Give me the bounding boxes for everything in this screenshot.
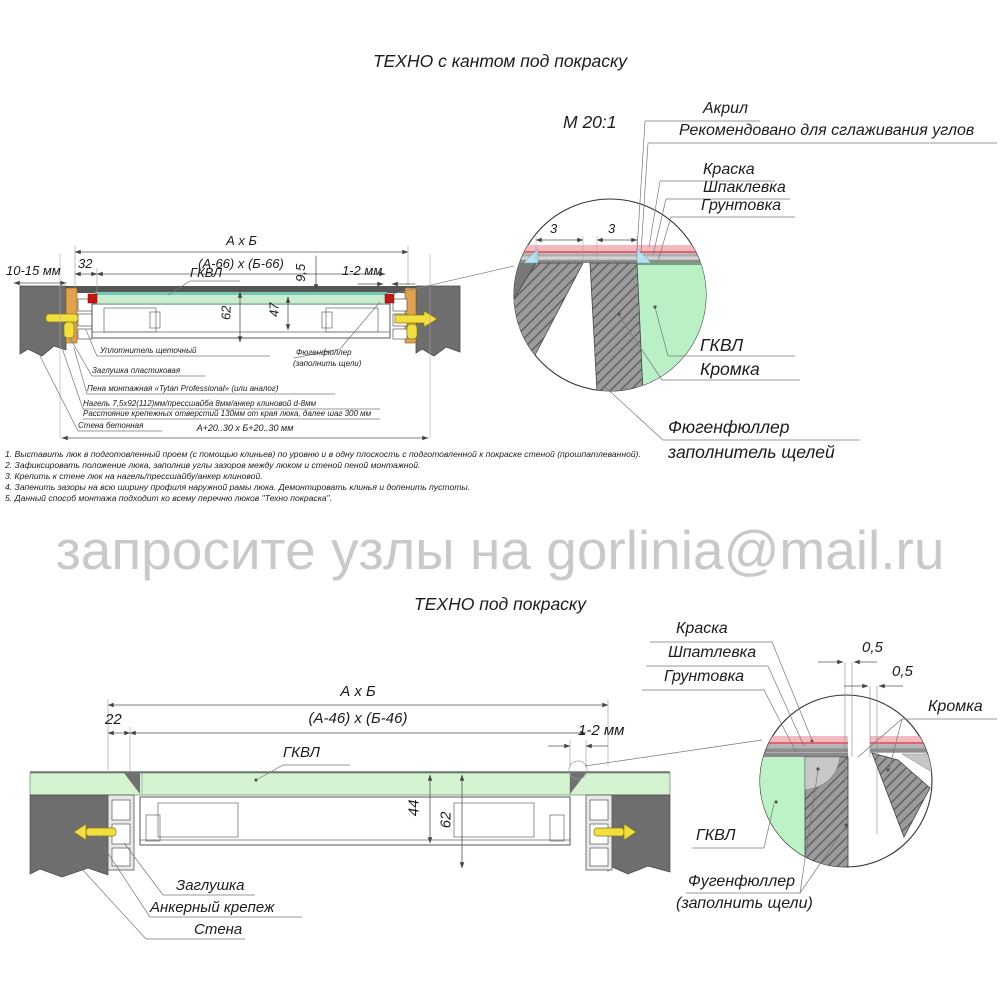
bdim-12: 1-2 мм bbox=[578, 723, 624, 739]
detail-fugen-title: Фюгенфюллер bbox=[668, 418, 789, 436]
dim-62: 62 bbox=[219, 306, 233, 320]
scale-label: М 20:1 bbox=[563, 113, 617, 131]
annot-fugen-2: (заполнить щели) bbox=[293, 360, 361, 368]
primer-layer-left bbox=[760, 748, 848, 753]
bdim-22: 22 bbox=[105, 712, 122, 728]
paint-line bbox=[513, 251, 708, 253]
annot-stena: Стена бетонная bbox=[78, 422, 143, 430]
gkvl-section bbox=[760, 753, 805, 867]
bcallout-kromka: Кромка bbox=[928, 699, 983, 716]
gkvl-panel-top bbox=[95, 292, 387, 295]
bcallout-zaglushka: Заглушка bbox=[176, 878, 244, 894]
callout-shpaklevka: Шпаклевка bbox=[703, 180, 786, 197]
dim-47: 47 bbox=[267, 303, 281, 317]
bcallout-gruntovka: Грунтовка bbox=[664, 669, 744, 686]
putty-layer bbox=[513, 254, 708, 257]
bottom-drawing bbox=[30, 699, 762, 939]
lid-edge-hatch bbox=[590, 263, 643, 392]
bdim-gkvl: ГКВЛ bbox=[283, 745, 320, 761]
dim-3-left: 3 bbox=[550, 222, 557, 236]
bottom-title: ТЕХНО под покраску bbox=[0, 595, 1000, 613]
lid-body bbox=[140, 797, 570, 845]
dim-3-right: 3 bbox=[608, 222, 615, 236]
bdim-62: 62 bbox=[438, 812, 454, 829]
edge-strip bbox=[760, 753, 848, 757]
paint-line-right bbox=[870, 742, 932, 744]
paint-line-left bbox=[760, 742, 848, 744]
note-2: 2. Зафиксировать положение люка, заполни… bbox=[5, 460, 420, 470]
bdim-05b: 0,5 bbox=[892, 664, 913, 680]
note-4: 4. Запенить зазоры на всю ширину профиля… bbox=[5, 482, 470, 492]
page: ТЕХНО с кантом под покраску М 20:1 Акрил… bbox=[0, 0, 1000, 1000]
putty-layer-right bbox=[870, 744, 932, 748]
lid-body bbox=[92, 304, 390, 338]
bdim-axb: А х Б bbox=[108, 684, 608, 700]
dim-32: 32 bbox=[78, 257, 92, 271]
bcallout-shpatlevka: Шпатлевка bbox=[668, 645, 756, 662]
dim-gkvl: ГКВЛ bbox=[190, 266, 222, 280]
base-layer bbox=[513, 260, 708, 263]
callout-akril: Акрил bbox=[703, 101, 748, 118]
primer-layer-right bbox=[870, 748, 932, 753]
bdim-inner: (А-46) х (Б-46) bbox=[130, 711, 586, 727]
gkvl-edge-line bbox=[637, 263, 717, 265]
annot-uplotnitel: Уплотнитель щеточный bbox=[100, 347, 196, 355]
note-3: 3. Крепить к стене люк на нагель/прессша… bbox=[5, 471, 263, 481]
bottom-05-dims bbox=[818, 662, 903, 686]
annot-zaglushka: Заглушка пластиковая bbox=[92, 367, 180, 375]
annot-fugen-1: Фюгенфюллер bbox=[296, 349, 352, 357]
annot-rasstoyanie: Расстояние крепежных отверстий 130мм от … bbox=[83, 410, 371, 418]
note-5: 5. Данный способ монтажа подходит ко все… bbox=[5, 493, 332, 503]
bcallout-gkvl: ГКВЛ bbox=[696, 828, 735, 845]
bcallout-kraska: Краска bbox=[676, 621, 728, 638]
watermark: запросите узлы на gorlinia@mail.ru bbox=[0, 518, 1000, 582]
top-title: ТЕХНО с кантом под покраску bbox=[0, 52, 1000, 70]
bcallout-stena: Стена bbox=[194, 922, 242, 938]
dim-12: 1-2 мм bbox=[342, 264, 382, 278]
bdim-05a: 0,5 bbox=[862, 640, 883, 656]
annot-pena: Пена монтажная «Tytan Professional» (или… bbox=[87, 385, 278, 393]
sealant-right bbox=[385, 294, 394, 303]
bcallout-fugen-1: Фугенфюллер bbox=[688, 874, 795, 891]
detail-fugen-sub: заполнитель щелей bbox=[668, 443, 835, 461]
detail-gkvl: ГКВЛ bbox=[700, 336, 743, 354]
callout-akril-note: Рекомендовано для сглаживания углов bbox=[679, 123, 974, 140]
bcallout-anker: Анкерный крепеж bbox=[150, 900, 274, 916]
bdim-44: 44 bbox=[406, 800, 422, 817]
annot-nagel: Нагель 7,5х92(112)мм/прессшайба 8мм/анке… bbox=[83, 400, 316, 408]
primer-layer bbox=[513, 257, 708, 260]
detail-kromka: Кромка bbox=[700, 360, 760, 378]
sealant-left bbox=[88, 294, 97, 303]
note-1: 1. Выставить люк в подготовленный проем … bbox=[5, 449, 641, 459]
bcallout-fugen-2: (заполнить щели) bbox=[676, 896, 813, 913]
putty-layer-left bbox=[760, 744, 848, 748]
dim-axb: А х Б bbox=[75, 234, 408, 248]
callout-gruntovka: Грунтовка bbox=[701, 198, 781, 215]
dim-10-15: 10-15 мм bbox=[6, 264, 61, 278]
dim-95: 9,5 bbox=[294, 264, 308, 282]
callout-kraska: Краска bbox=[703, 162, 755, 179]
